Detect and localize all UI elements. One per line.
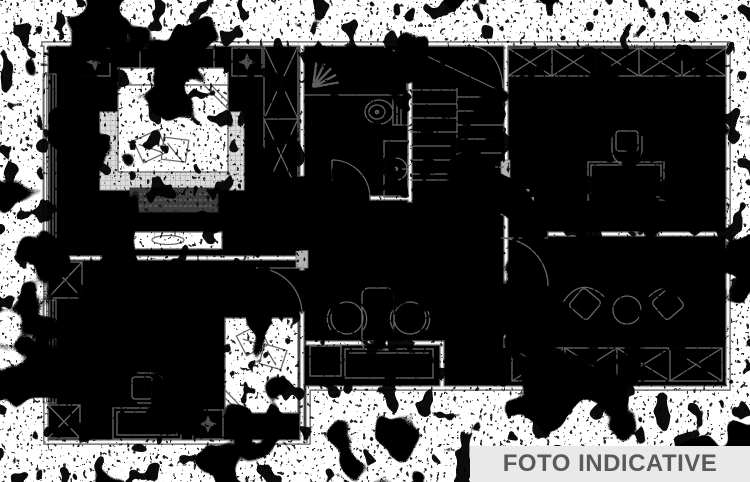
banner-label: FOTO INDICATIVE xyxy=(503,450,718,478)
floor-plan-drawing xyxy=(0,0,750,482)
floor-plan-photo: FOTO INDICATIVE xyxy=(0,0,750,482)
foto-indicative-banner: FOTO INDICATIVE xyxy=(470,446,750,482)
dither-noise-overlay xyxy=(0,0,750,482)
